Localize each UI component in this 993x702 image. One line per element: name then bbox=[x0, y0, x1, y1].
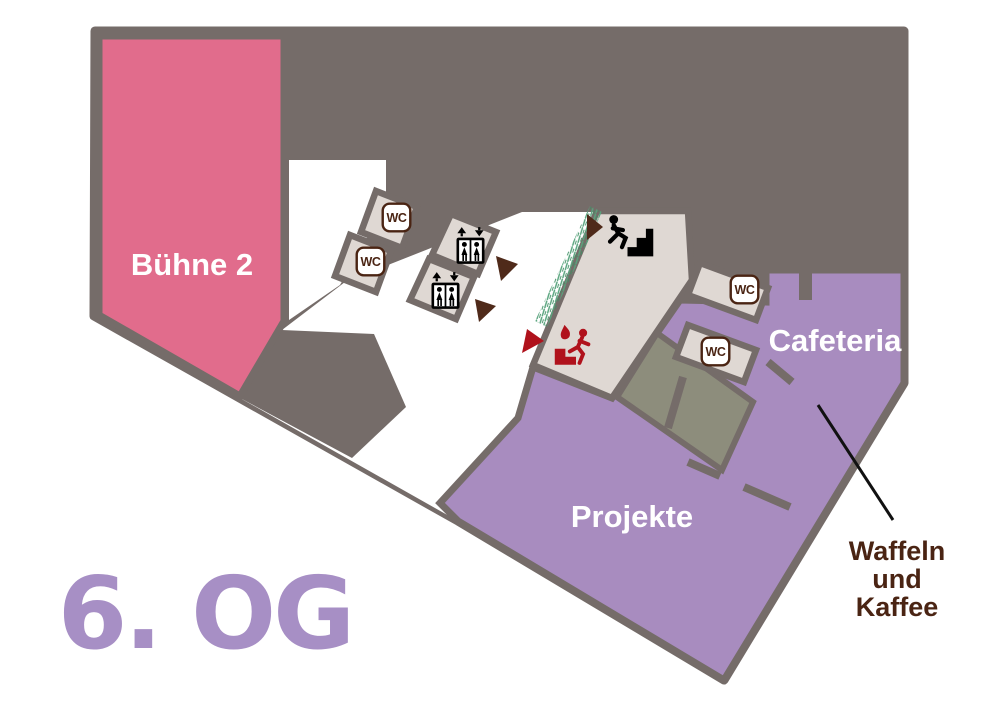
wc-icon bbox=[357, 248, 385, 276]
annotation-line-1: Waffeln bbox=[849, 536, 946, 566]
wc-icon bbox=[702, 338, 730, 366]
wc-icon bbox=[731, 276, 759, 304]
floorplan-svg: WC bbox=[0, 0, 993, 702]
floor-level-label: 6. OG bbox=[58, 555, 352, 672]
room-label-cafeteria: Cafeteria bbox=[769, 323, 902, 358]
annotation-line-3: Kaffee bbox=[856, 592, 939, 622]
wc-icon bbox=[383, 204, 411, 232]
annotation-line-2: und bbox=[872, 564, 921, 594]
floorplan-6og: WC bbox=[0, 0, 993, 702]
room-label-buehne2: Bühne 2 bbox=[131, 247, 253, 282]
room-label-projekte: Projekte bbox=[571, 499, 693, 534]
room-buehne2 bbox=[99, 36, 284, 396]
